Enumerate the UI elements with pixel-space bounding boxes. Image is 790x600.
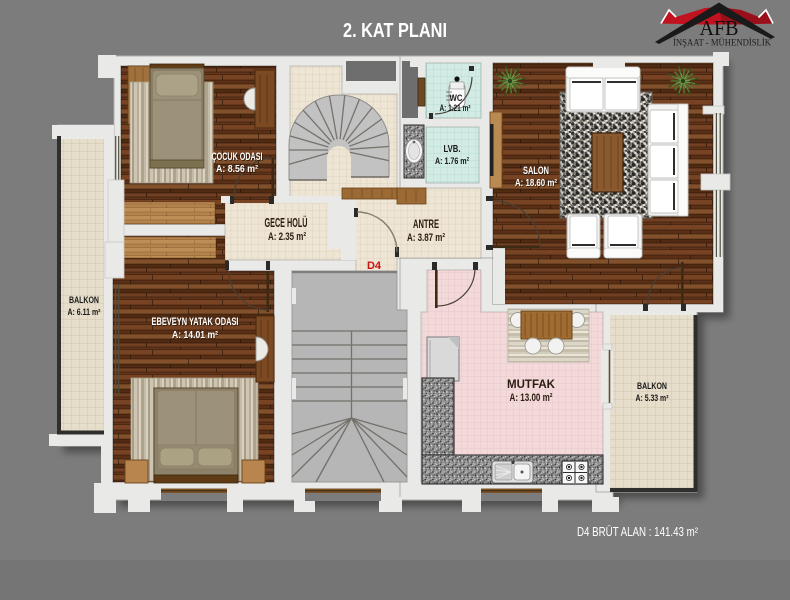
svg-text:A: 1.21 m²: A: 1.21 m² xyxy=(440,103,471,113)
svg-text:MUTFAK: MUTFAK xyxy=(507,379,556,391)
svg-text:WC: WC xyxy=(450,93,463,103)
svg-text:EBEVEYN YATAK ODASI: EBEVEYN YATAK ODASI xyxy=(152,316,239,328)
svg-text:BALKON: BALKON xyxy=(69,295,99,306)
svg-text:D4 BRÜT ALAN : 141.43 m²: D4 BRÜT ALAN : 141.43 m² xyxy=(577,525,698,539)
svg-text:A: 18.60 m²: A: 18.60 m² xyxy=(515,178,558,189)
svg-text:A: 8.56 m²: A: 8.56 m² xyxy=(216,164,259,175)
svg-text:AFB: AFB xyxy=(700,16,739,40)
svg-text:SALON: SALON xyxy=(523,165,549,177)
svg-text:D4: D4 xyxy=(367,260,382,272)
svg-text:A: 1.76 m²: A: 1.76 m² xyxy=(435,156,469,167)
svg-text:İNŞAAT - MÜHENDİSLİK: İNŞAAT - MÜHENDİSLİK xyxy=(673,38,771,48)
svg-text:A: 2.35 m²: A: 2.35 m² xyxy=(268,231,306,243)
svg-text:BALKON: BALKON xyxy=(637,381,667,392)
svg-text:2. KAT PLANI: 2. KAT PLANI xyxy=(343,20,447,42)
svg-text:A: 6.11 m²: A: 6.11 m² xyxy=(68,307,101,317)
svg-text:ANTRE: ANTRE xyxy=(413,217,439,231)
svg-text:LVB.: LVB. xyxy=(444,143,461,155)
svg-text:GECE HOLÜ: GECE HOLÜ xyxy=(265,215,308,230)
svg-text:ÇOCUK ODASI: ÇOCUK ODASI xyxy=(212,151,263,163)
svg-text:A: 3.87 m²: A: 3.87 m² xyxy=(407,232,445,244)
svg-text:A: 5.33 m²: A: 5.33 m² xyxy=(636,393,669,403)
svg-text:A: 13.00 m²: A: 13.00 m² xyxy=(510,392,553,404)
svg-text:A: 14.01 m²: A: 14.01 m² xyxy=(172,330,219,341)
